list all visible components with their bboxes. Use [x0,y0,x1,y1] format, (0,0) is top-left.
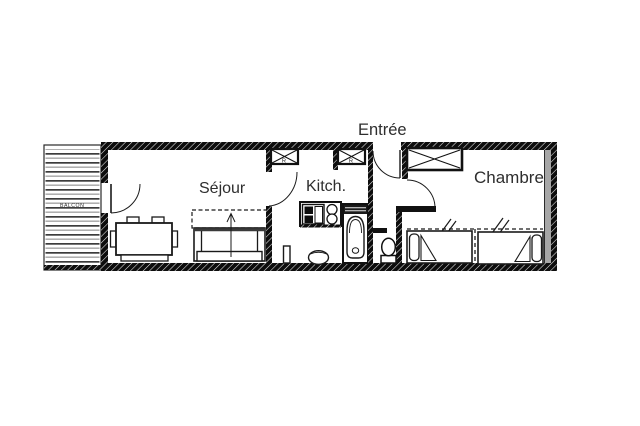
living-kitchen-divider [266,150,297,271]
bedroom-door-swing-arc [407,180,435,208]
bed2-pillow [532,235,542,262]
bathroom [343,150,373,263]
closet-left-label: R [282,159,286,165]
right-wall-gray-band [545,150,551,263]
balcony-door [111,184,140,213]
stove-burner-top [305,207,314,215]
toilet-bowl [382,238,396,256]
kitchen-counter [300,202,341,228]
bedroom-door [396,180,436,212]
toilet-base [381,256,396,264]
counter-front-edge [300,225,341,228]
stove-burner-bottom [305,216,314,224]
living-room-label: Séjour [199,180,246,197]
beds [407,218,543,264]
bedroom-door-leaf [396,206,436,212]
sink-bowl-top [327,205,337,215]
dining-table [116,223,172,255]
balcony-door-swing-arc [111,184,140,213]
kitchen-label: Kitch. [306,178,346,195]
balcony-label: BALCON [60,203,84,209]
stove-oven-panel [315,207,323,224]
bedroom: Chambre [396,148,544,264]
right-wall [551,142,557,271]
bed-2 [478,232,543,264]
sink-bowl-bottom [327,214,337,224]
divider-wall-lower [266,206,272,271]
living-room: Séjour [111,180,269,261]
kitchen: Kitch. [284,178,347,264]
washbasin [309,251,329,265]
left-wall-lower [101,213,108,271]
left-wall-upper [101,142,108,183]
top-wall-left-segment [101,142,373,150]
closet-left: R [271,149,298,165]
wc [373,212,402,263]
closet-mid-label: R [349,159,353,165]
wc-door-jamb [373,228,387,233]
dining-table-group [111,217,178,261]
balcony-bottom-edge [44,265,101,270]
bed1-pillow [410,234,420,261]
hall-bathroom-wall [368,150,373,263]
closet-mid: R [333,149,365,170]
floor-plan-page: BALCON Séjour [0,0,640,426]
bedroom-closet [407,148,462,170]
bedroom-label: Chambre [474,168,544,187]
entry-door-swing-arc [373,151,400,178]
floor-plan: BALCON Séjour [0,0,640,426]
sofa-base [197,252,262,262]
bed-1 [407,231,472,263]
sofa-bed-unfolded-dashed [192,210,268,228]
entry-label: Entrée [358,121,407,139]
wc-bedroom-wall [396,212,402,263]
radiator [284,246,291,263]
kitchen-door-swing-arc [269,172,297,206]
closets: R R [271,149,365,170]
bench [121,255,168,261]
balcony: BALCON [44,145,101,270]
bathtub-deck [344,205,367,214]
sofa-bed-group [192,210,268,261]
